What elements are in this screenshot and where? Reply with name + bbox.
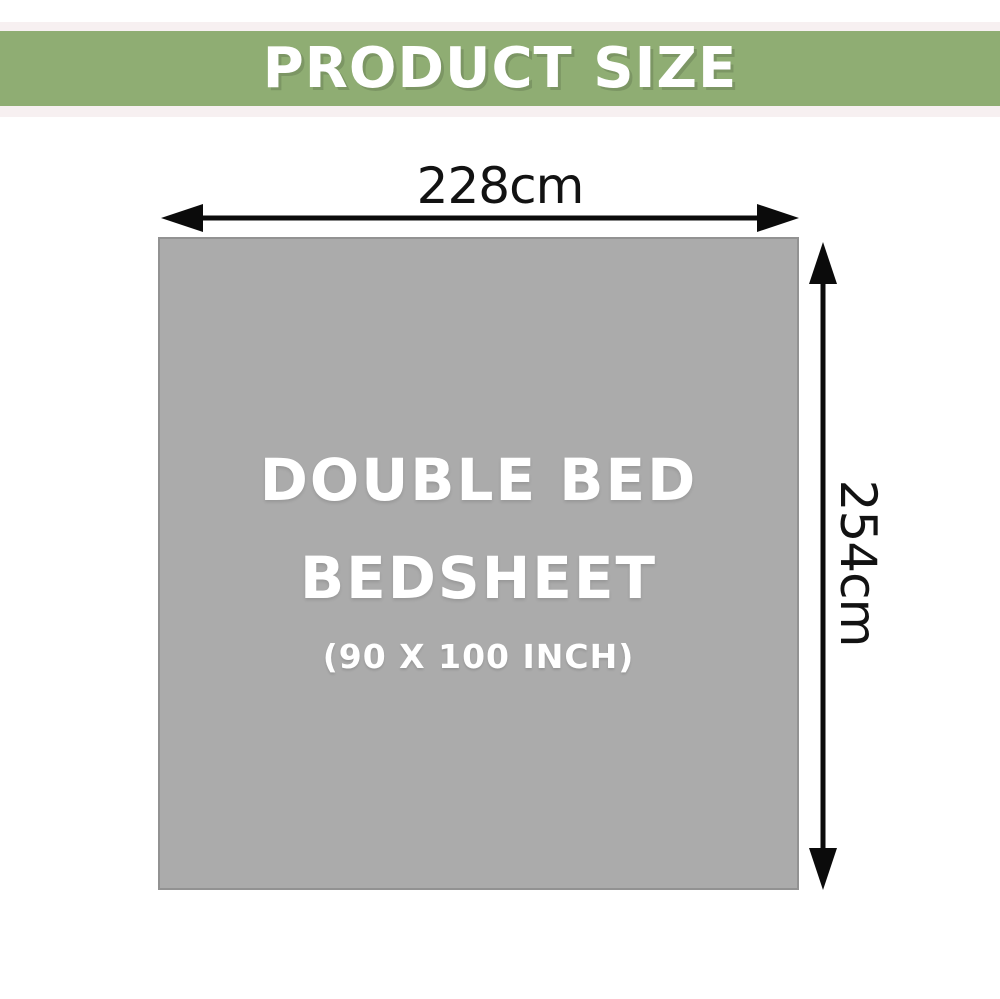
product-size-infographic: PRODUCT SIZE 228cm DOUBLE BED BEDSHEET (… <box>0 0 1000 999</box>
page-title: PRODUCT SIZE <box>263 36 738 101</box>
product-size-inches: (90 X 100 INCH) <box>323 637 635 676</box>
height-dimension-label: 254cm <box>829 480 887 647</box>
bedsheet-rectangle: DOUBLE BED BEDSHEET (90 X 100 INCH) <box>158 237 799 890</box>
header-banner-border: PRODUCT SIZE <box>0 22 1000 117</box>
product-name-line2: BEDSHEET <box>300 549 657 607</box>
double-arrow-horizontal-icon <box>159 200 801 236</box>
header-banner: PRODUCT SIZE <box>0 31 1000 106</box>
product-name-line1: DOUBLE BED <box>260 451 698 509</box>
